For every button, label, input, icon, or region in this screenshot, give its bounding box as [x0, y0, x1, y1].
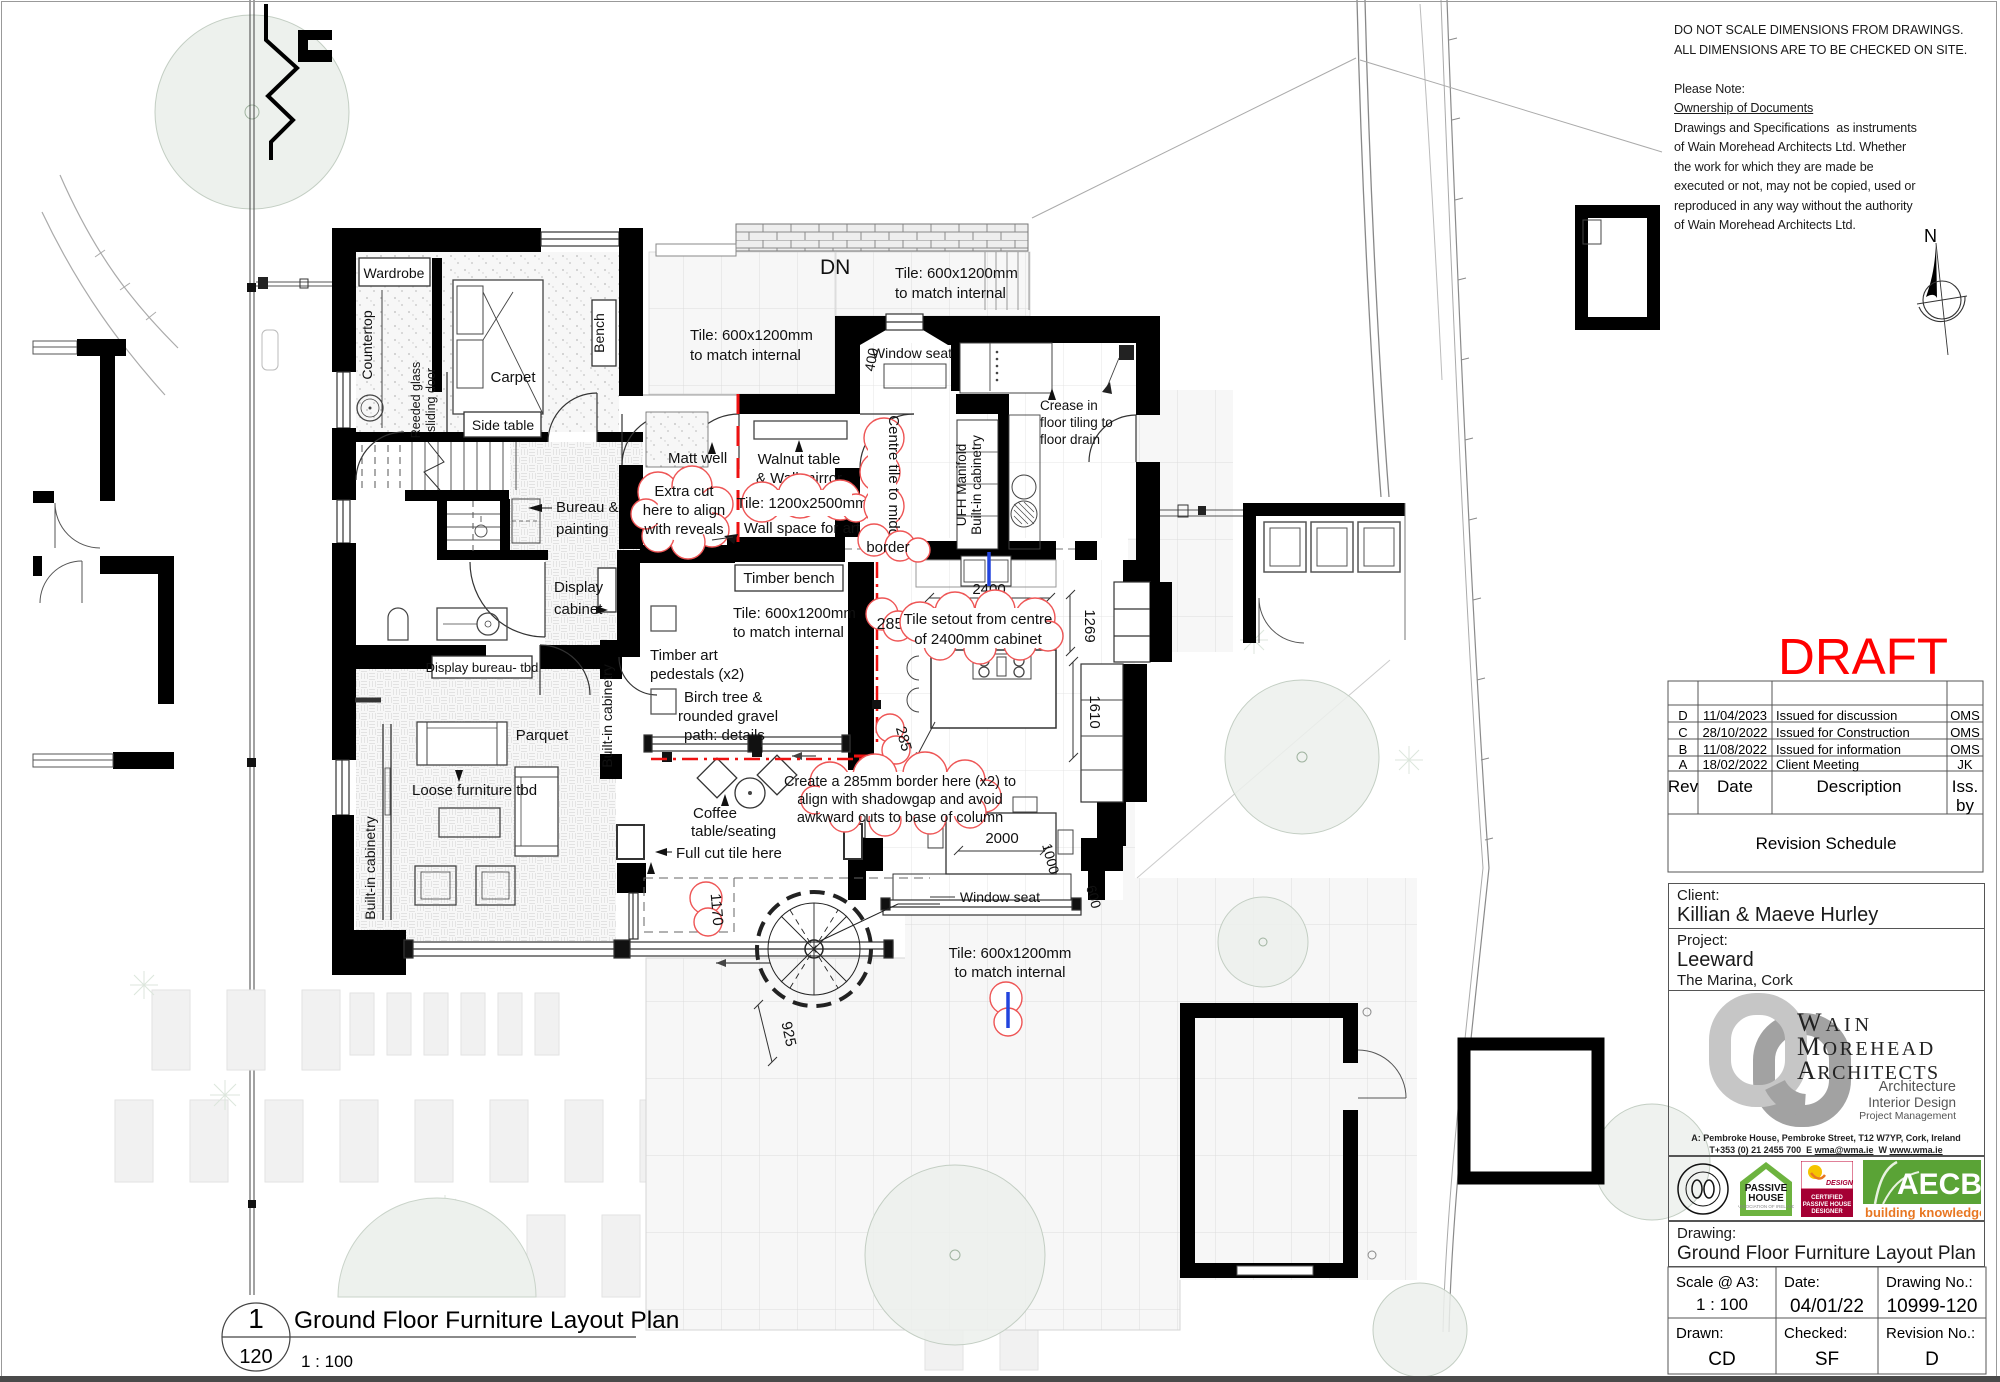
svg-text:OMS: OMS: [1950, 708, 1980, 723]
svg-text:by: by: [1956, 796, 1974, 815]
svg-text:Issued for discussion: Issued for discussion: [1776, 708, 1897, 723]
svg-text:DESIGNER: DESIGNER: [1826, 1180, 1853, 1187]
svg-text:1 : 100: 1 : 100: [301, 1352, 353, 1371]
svg-text:Description: Description: [1816, 777, 1901, 796]
svg-text:Client Meeting: Client Meeting: [1776, 757, 1859, 772]
svg-text:Revision Schedule: Revision Schedule: [1756, 834, 1897, 853]
svg-text:Iss.: Iss.: [1952, 777, 1978, 796]
svg-text:DESIGNER: DESIGNER: [1811, 1209, 1843, 1215]
svg-text:JK: JK: [1957, 757, 1973, 772]
svg-text:Scale @ A3:: Scale @ A3:: [1676, 1274, 1759, 1291]
svg-text:28/10/2022: 28/10/2022: [1702, 725, 1767, 740]
svg-text:Checked:: Checked:: [1784, 1325, 1847, 1342]
svg-text:building knowledge: building knowledge: [1865, 1205, 1981, 1220]
svg-text:D: D: [1678, 708, 1687, 723]
svg-text:C: C: [1678, 725, 1687, 740]
svg-text:CD: CD: [1708, 1349, 1735, 1370]
svg-text:Drawing No.:: Drawing No.:: [1886, 1274, 1973, 1291]
svg-text:PASSIVE HOUSE: PASSIVE HOUSE: [1803, 1202, 1852, 1208]
svg-text:SF: SF: [1815, 1349, 1839, 1370]
svg-text:B: B: [1679, 742, 1688, 757]
svg-text:Revision No.:: Revision No.:: [1886, 1325, 1975, 1342]
svg-text:Issued for Construction: Issued for Construction: [1776, 725, 1910, 740]
svg-text:11/04/2023: 11/04/2023: [1703, 708, 1767, 723]
svg-text:Ground Floor Furniture Layout: Ground Floor Furniture Layout Plan: [294, 1307, 679, 1334]
svg-text:10999-120: 10999-120: [1887, 1296, 1978, 1317]
svg-text:A: A: [1679, 757, 1688, 772]
svg-text:N: N: [1924, 226, 1937, 246]
svg-text:Date:: Date:: [1784, 1274, 1820, 1291]
svg-text:18/02/2022: 18/02/2022: [1702, 757, 1767, 772]
svg-text:Issued for information: Issued for information: [1776, 742, 1901, 757]
svg-text:Drawn:: Drawn:: [1676, 1325, 1724, 1342]
svg-text:D: D: [1925, 1349, 1939, 1370]
svg-text:CERTIFIED: CERTIFIED: [1811, 1195, 1843, 1201]
svg-text:Rev: Rev: [1668, 777, 1699, 796]
svg-text:HOUSE: HOUSE: [1748, 1193, 1784, 1204]
svg-text:1: 1: [248, 1303, 264, 1334]
svg-text:11/08/2022: 11/08/2022: [1703, 742, 1767, 757]
svg-text:Date: Date: [1717, 777, 1753, 796]
svg-text:OMS: OMS: [1950, 725, 1980, 740]
svg-text:ASSOCIATION OF IRELAND: ASSOCIATION OF IRELAND: [1738, 1204, 1794, 1209]
svg-text:OMS: OMS: [1950, 742, 1980, 757]
svg-text:AECB: AECB: [1897, 1168, 1981, 1201]
svg-text:1 : 100: 1 : 100: [1696, 1295, 1748, 1314]
svg-text:04/01/22: 04/01/22: [1790, 1296, 1864, 1317]
svg-text:120: 120: [239, 1346, 272, 1368]
